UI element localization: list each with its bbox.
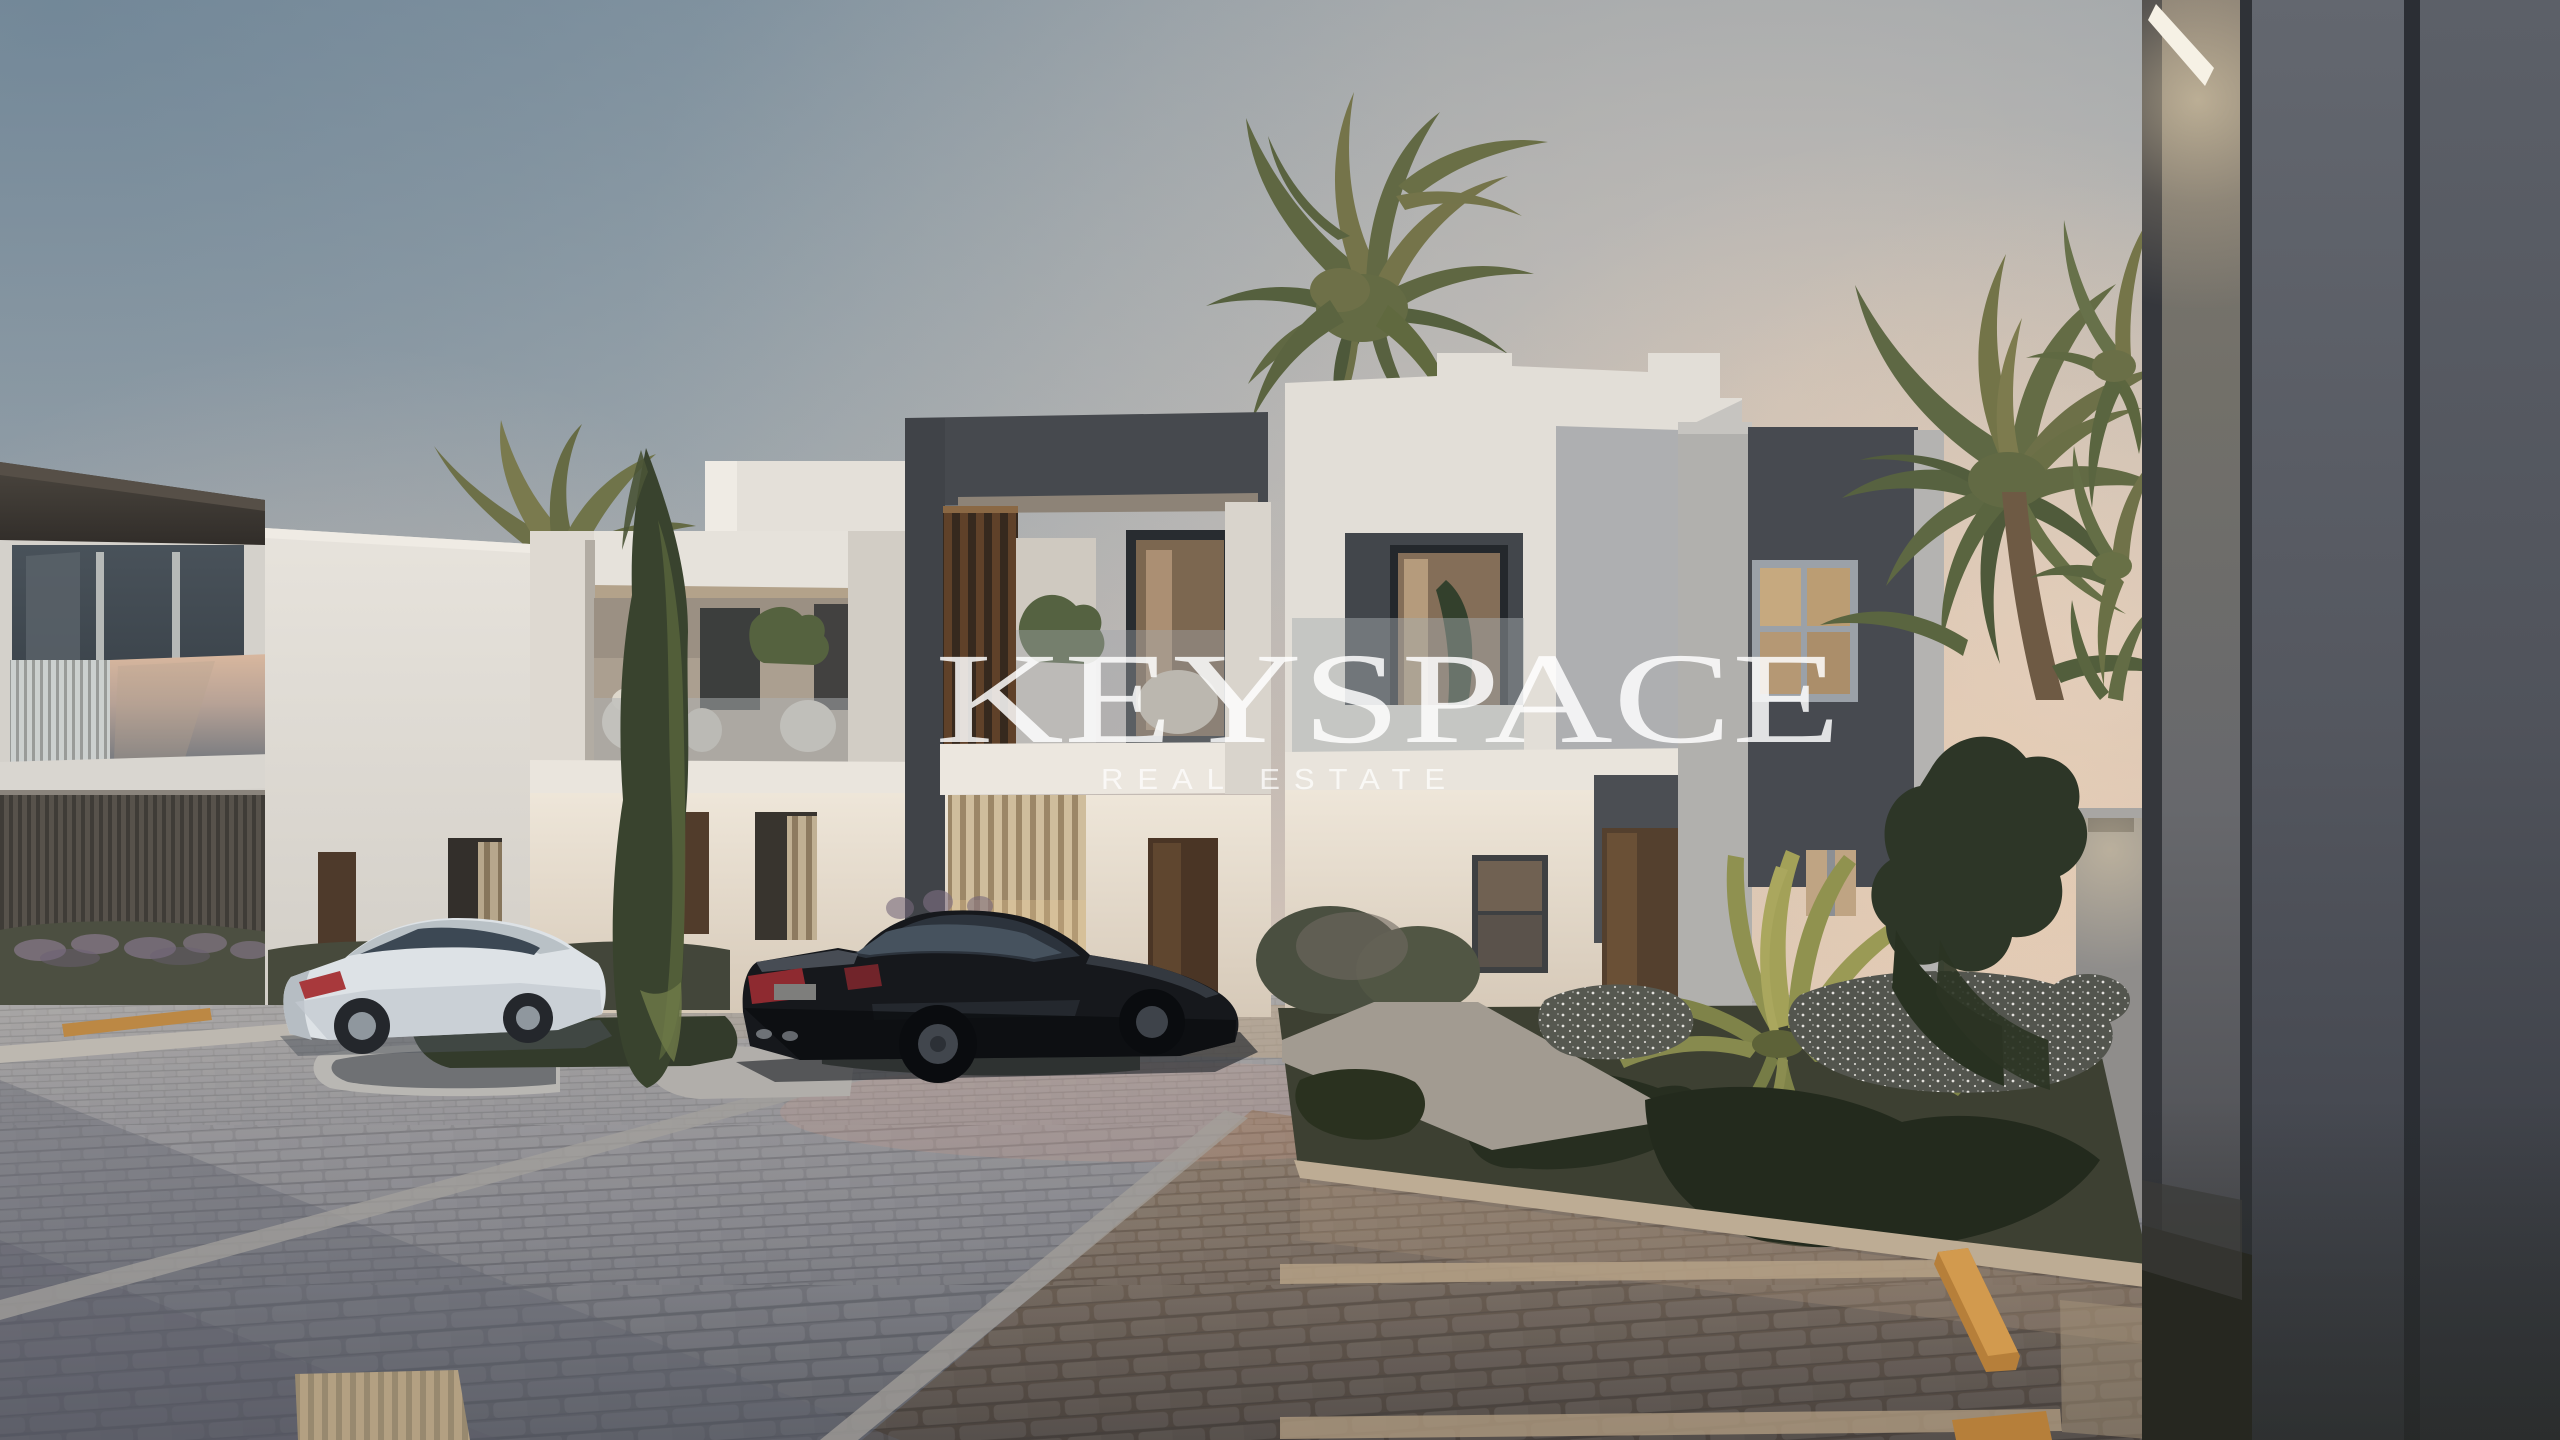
svg-text:REAL ESTATE: REAL ESTATE [1101,764,1459,796]
svg-text:KEYSPACE: KEYSPACE [935,627,1841,771]
